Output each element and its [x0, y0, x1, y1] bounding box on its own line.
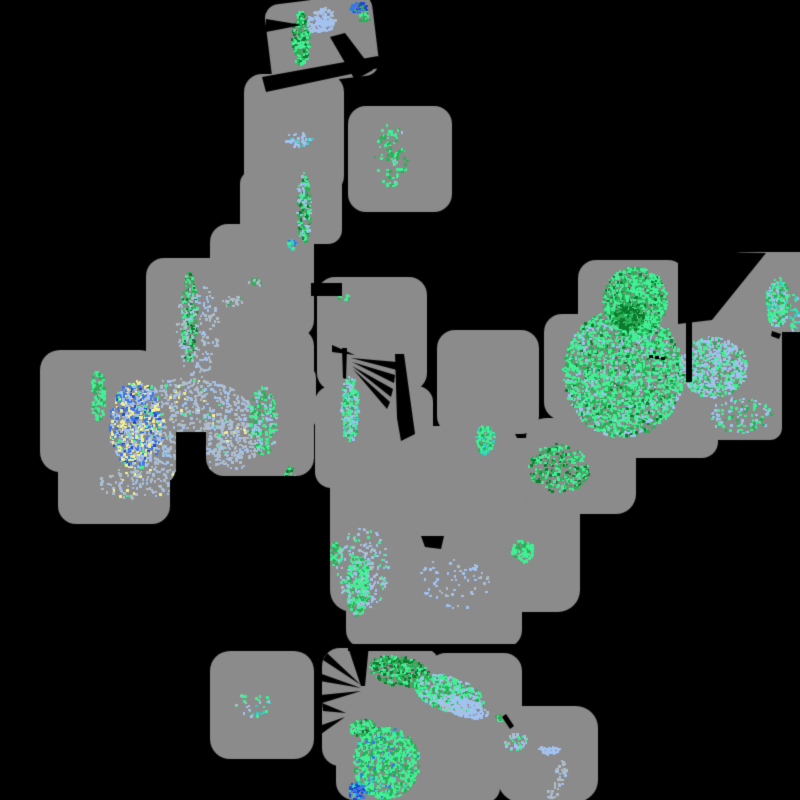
radar-canvas [0, 0, 800, 800]
radar-mosaic-map [0, 0, 800, 800]
